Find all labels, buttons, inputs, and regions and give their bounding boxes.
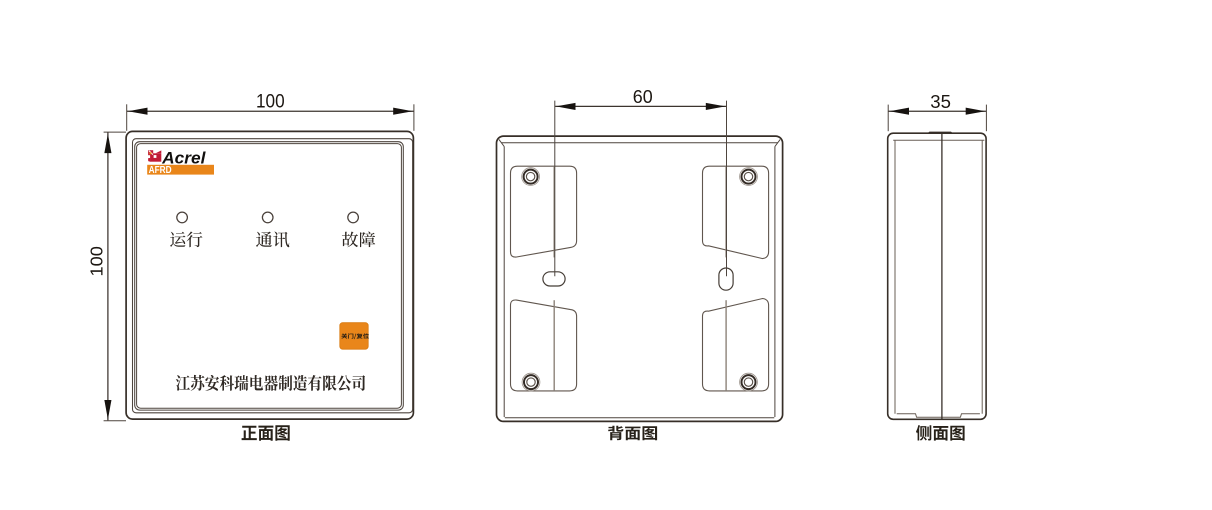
svg-text:AFRD: AFRD [149,165,172,176]
svg-text:100: 100 [256,91,285,112]
svg-text:60: 60 [633,87,653,108]
svg-text:35: 35 [930,92,951,112]
svg-text:100: 100 [87,246,107,276]
